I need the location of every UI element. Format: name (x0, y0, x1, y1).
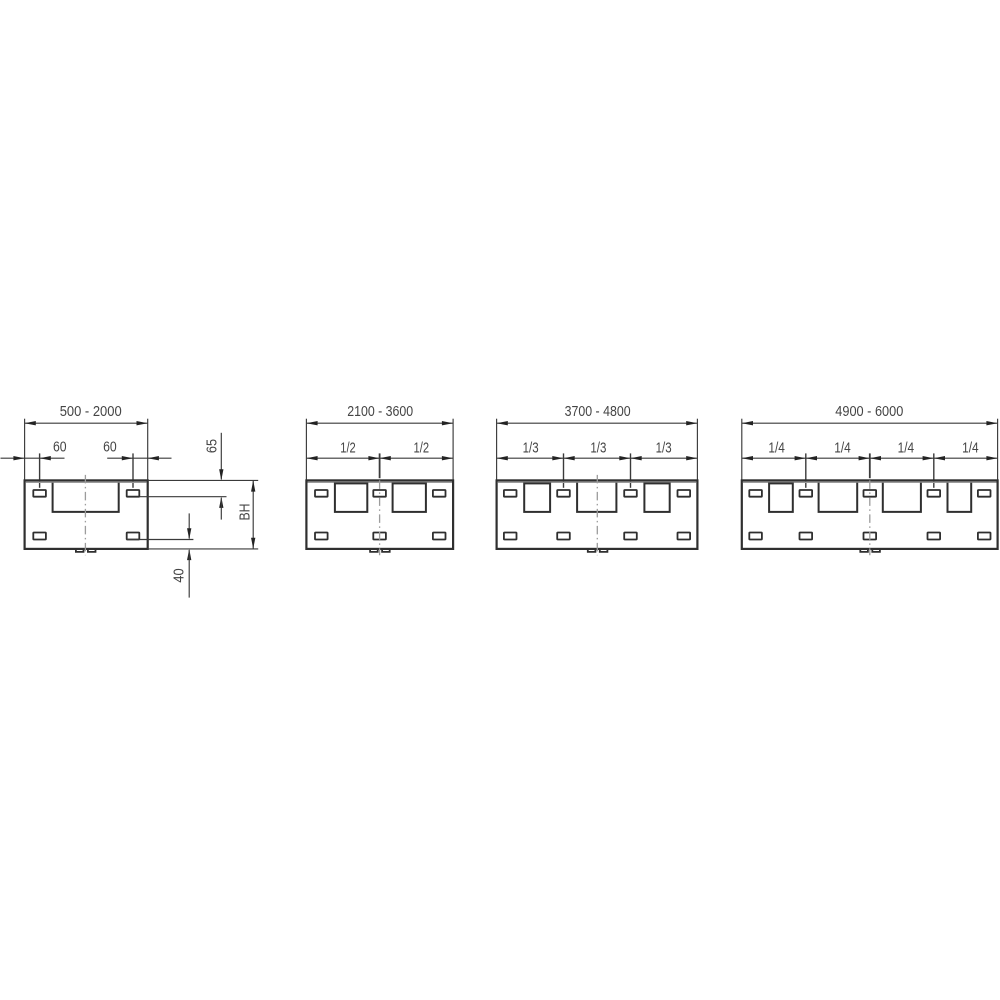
svg-text:1/4: 1/4 (768, 440, 785, 457)
svg-text:1/2: 1/2 (340, 440, 356, 457)
svg-text:1/3: 1/3 (590, 440, 606, 457)
svg-text:60: 60 (103, 439, 117, 456)
svg-text:1/4: 1/4 (834, 440, 851, 457)
svg-text:65: 65 (204, 439, 220, 453)
svg-text:4900 - 6000: 4900 - 6000 (835, 403, 903, 420)
svg-text:2100 - 3600: 2100 - 3600 (347, 403, 413, 420)
svg-text:1/4: 1/4 (898, 440, 915, 457)
svg-text:1/2: 1/2 (414, 440, 430, 457)
svg-text:1/3: 1/3 (523, 440, 539, 457)
svg-text:1/4: 1/4 (962, 440, 979, 457)
svg-text:500 - 2000: 500 - 2000 (60, 403, 122, 420)
svg-text:3700 - 4800: 3700 - 4800 (565, 403, 631, 420)
svg-text:40: 40 (171, 568, 187, 582)
svg-text:BH: BH (237, 504, 253, 521)
svg-text:1/3: 1/3 (656, 440, 672, 457)
svg-text:60: 60 (53, 439, 67, 456)
